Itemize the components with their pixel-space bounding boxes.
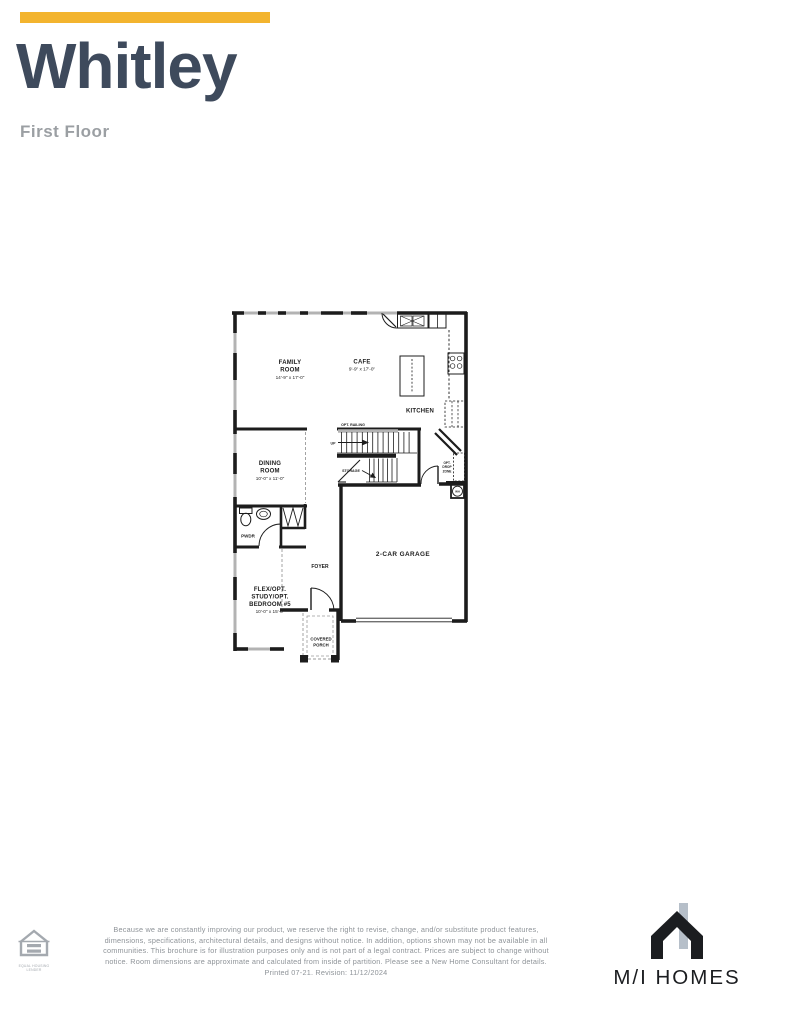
cafe-dims: 9'-9" x 17'-0" xyxy=(349,367,376,372)
cased-openings xyxy=(282,432,306,607)
stove-icon xyxy=(448,353,464,374)
cafe-label: CAFE xyxy=(353,360,370,366)
family-room-dims: 14'-9" x 17'-0" xyxy=(276,375,305,380)
equal-housing-text-line2: LENDER xyxy=(16,968,52,972)
equal-housing-icon xyxy=(17,927,51,959)
room-labels: FAMILY ROOM 14'-9" x 17'-0" CAFE 9'-9" x… xyxy=(241,360,434,648)
garage-entry-door xyxy=(421,466,438,484)
powder-fixtures xyxy=(240,508,304,526)
up-arrow xyxy=(338,440,369,445)
disclaimer-text: Because we are constantly improving our … xyxy=(98,925,554,979)
flex-room-dims: 10'-0" x 15'-0" xyxy=(256,609,285,614)
foyer-label: FOYER xyxy=(311,564,329,570)
kitchen-label: KITCHEN xyxy=(406,409,434,415)
brochure-page: { "colors": { "accent_gold": "#F3B42E", … xyxy=(0,0,788,1012)
floor-plan: FAMILY ROOM 14'-9" x 17'-0" CAFE 9'-9" x… xyxy=(225,300,473,678)
porch-post xyxy=(300,655,308,663)
drop-zone-area xyxy=(454,453,465,481)
svg-text:STUDY/OPT.: STUDY/OPT. xyxy=(251,595,288,601)
accent-bar xyxy=(20,12,270,23)
page-subtitle: First Floor xyxy=(20,122,110,142)
front-door xyxy=(311,588,334,610)
garage-label: 2-CAR GARAGE xyxy=(376,551,430,558)
svg-text:ROOM: ROOM xyxy=(280,368,299,374)
closet-hangers-icon xyxy=(283,508,303,526)
powder-label: PWDR xyxy=(241,534,255,539)
toilet-icon xyxy=(240,508,253,514)
optional-counter xyxy=(445,401,465,427)
sink-basin-icon xyxy=(257,509,271,520)
garage-door xyxy=(356,618,452,622)
dining-room-label: DINING xyxy=(259,461,281,467)
stairs xyxy=(337,431,417,482)
svg-text:PORCH: PORCH xyxy=(313,643,329,648)
floor-plan-drawing: FAMILY ROOM 14'-9" x 17'-0" CAFE 9'-9" x… xyxy=(225,300,473,678)
mi-homes-house-icon xyxy=(645,903,709,959)
family-room-label: FAMILY xyxy=(279,360,302,366)
powder-door xyxy=(259,524,281,546)
svg-text:ZONE: ZONE xyxy=(443,469,452,473)
porch-label: COVERED xyxy=(310,637,331,642)
flex-room-label: FLEX/OPT. xyxy=(254,587,286,593)
equal-housing-logo: EQUAL HOUSING LENDER xyxy=(16,927,52,973)
up-label: UP xyxy=(331,442,337,446)
opt-railing-label: OPT. RAILING xyxy=(341,423,365,427)
brand-wordmark: M/I HOMES xyxy=(601,966,753,990)
brand-logo: M/I HOMES xyxy=(601,903,753,990)
doors xyxy=(259,313,438,610)
svg-text:ROOM: ROOM xyxy=(260,469,279,475)
wh-label: WH xyxy=(455,490,460,494)
dining-room-dims: 10'-0" x 11'-0" xyxy=(256,476,285,481)
porch-post xyxy=(331,655,339,663)
svg-text:BEDROOM #5: BEDROOM #5 xyxy=(249,602,291,608)
page-title: Whitley xyxy=(16,34,237,98)
storage-label: STORAGE xyxy=(342,469,360,473)
